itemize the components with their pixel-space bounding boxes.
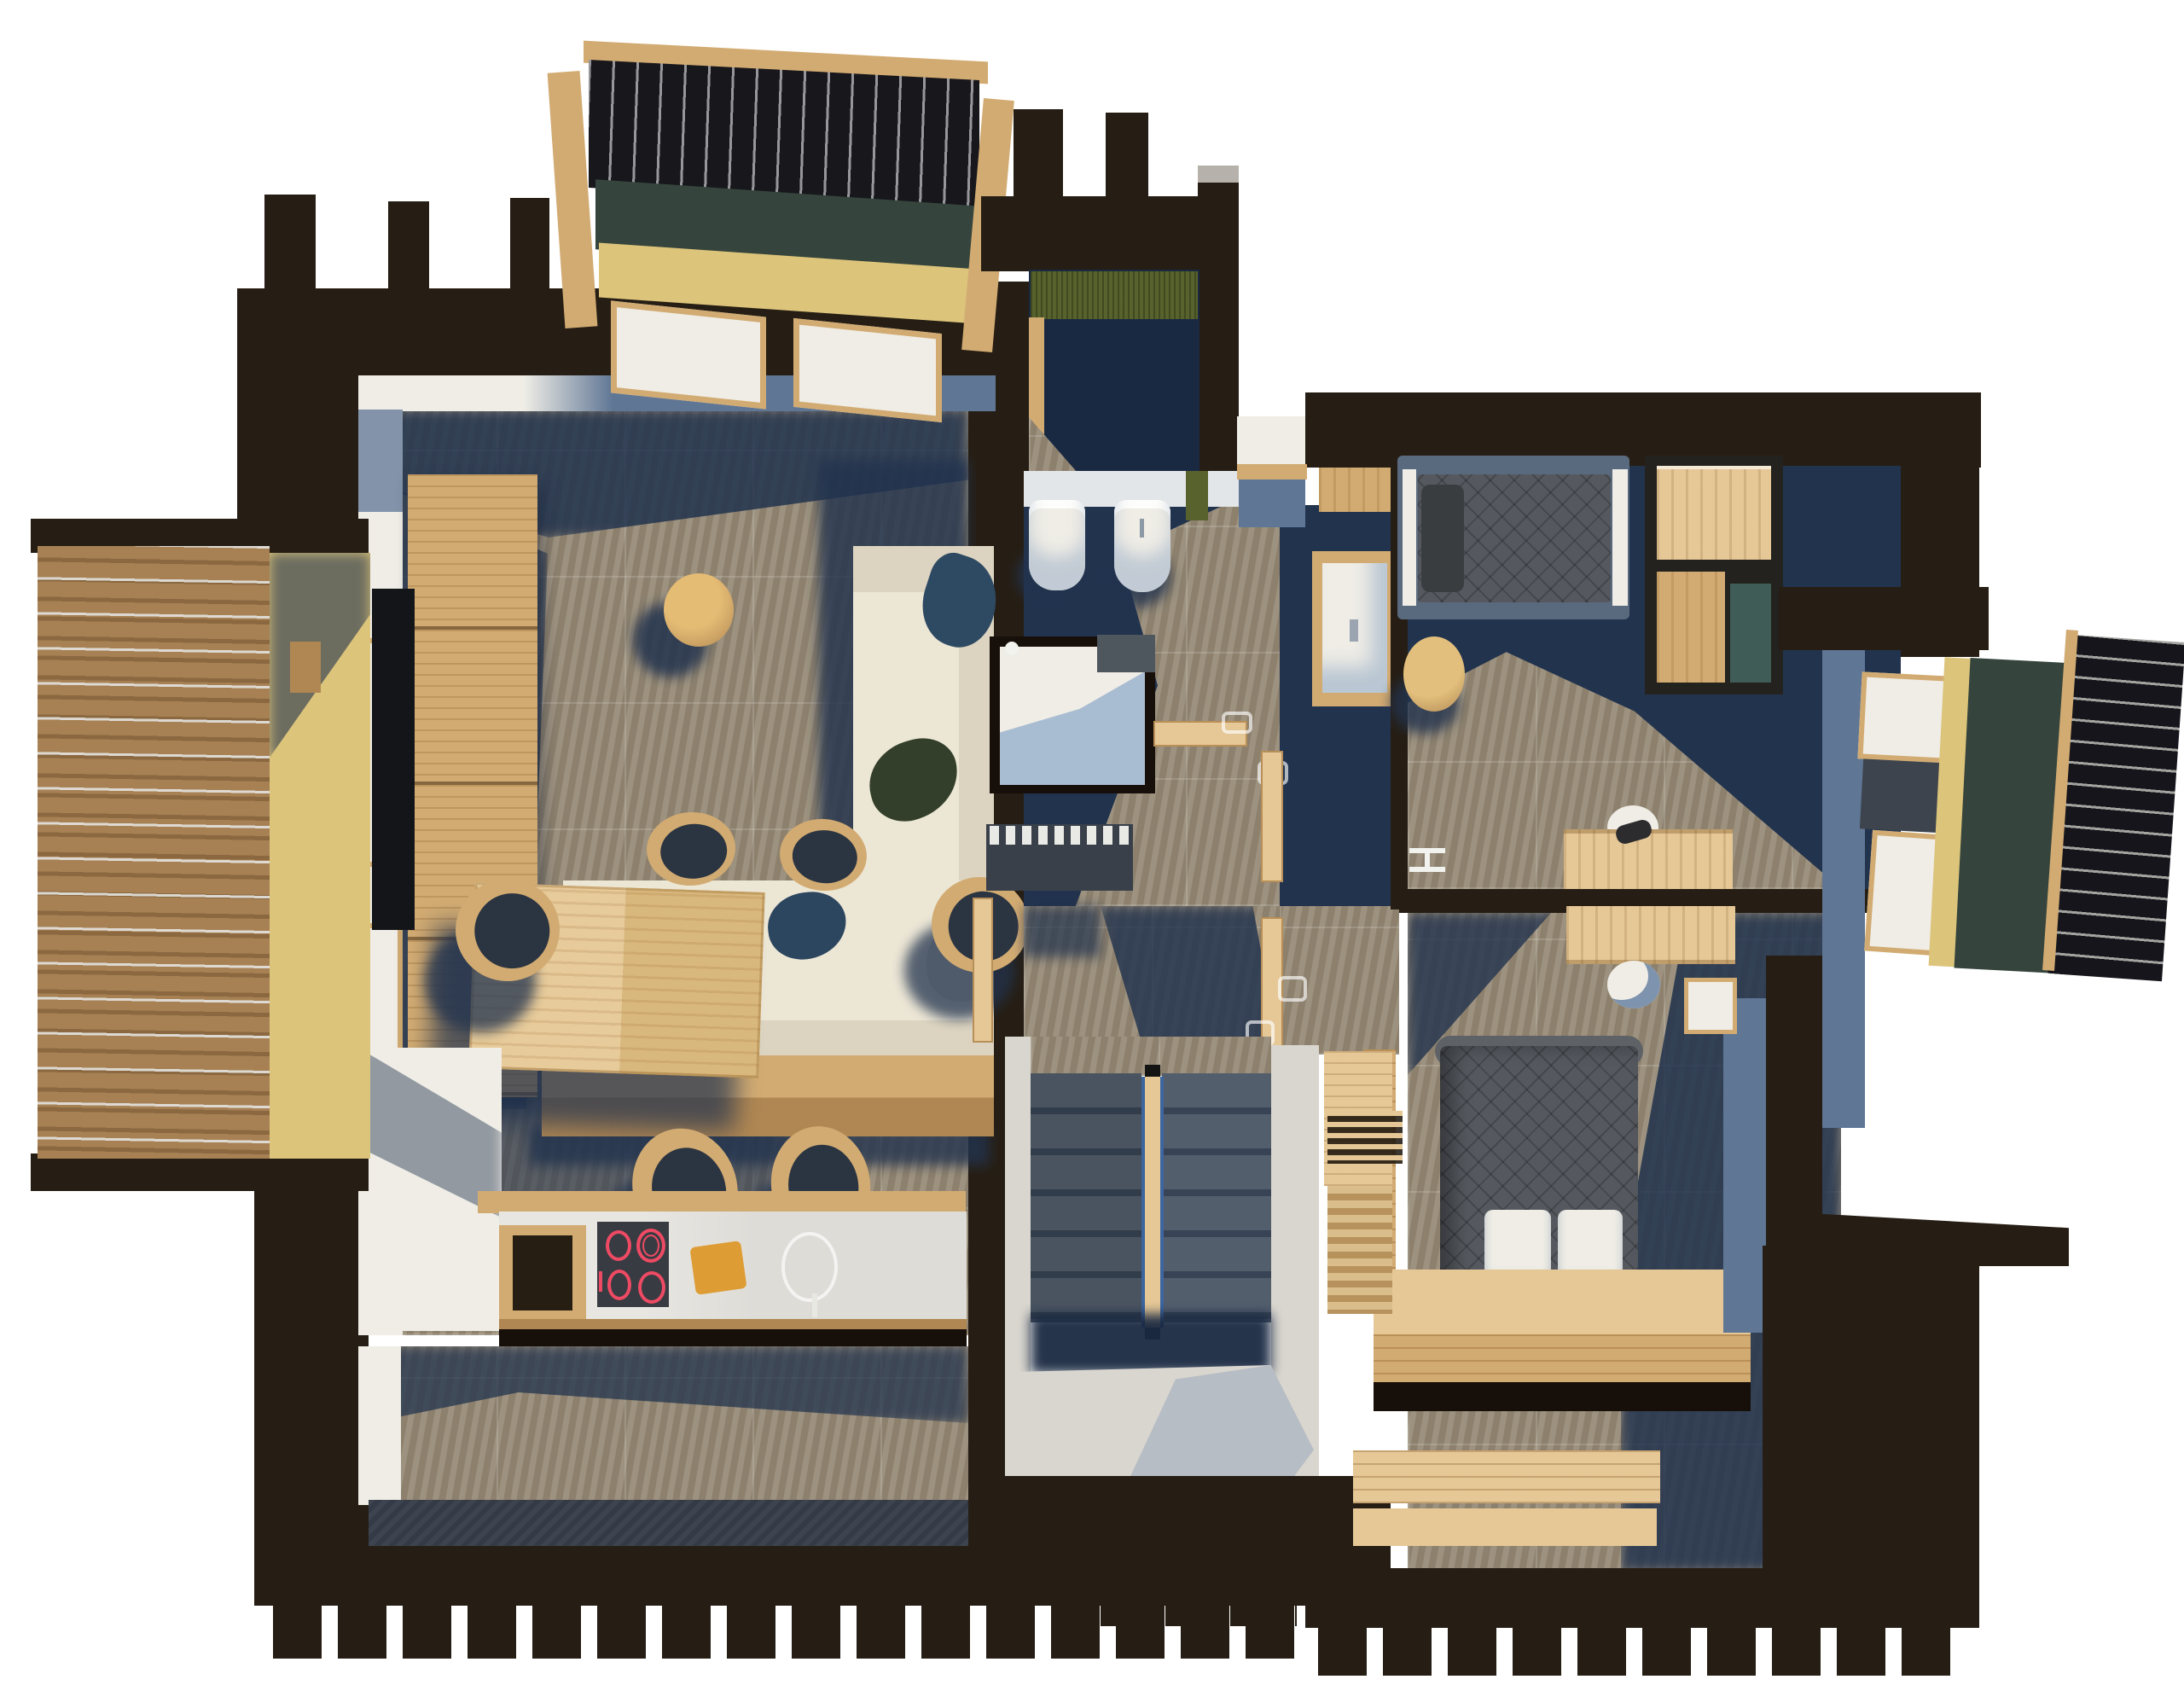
coffee-table [664,573,734,647]
hob-ring-icon [606,1230,631,1261]
door-handle [1278,976,1307,1002]
dormer-north-window [611,300,766,409]
wardrobe-teal-panel [1730,584,1771,683]
tv-screen [372,589,415,930]
entry-landing [1237,416,1305,466]
hob-ring-icon [607,1270,631,1300]
bedroom1-wardrobe [1645,456,1783,694]
cutting-board [689,1241,746,1295]
roof-slope-band [369,1500,968,1549]
dormer-window-sill [1684,978,1737,1034]
rafter-stub [388,201,429,295]
hob-bar-icon [599,1271,602,1292]
chair-seat [659,822,729,880]
chair-seat [468,887,555,974]
shower-head-icon [1005,642,1019,655]
stair-well-shadow [1031,1314,1271,1374]
vanity-basin [1322,563,1387,693]
marker-bar [1425,853,1430,867]
kitchen-front-edge [499,1319,967,1329]
stair-flight-right [1162,1073,1271,1322]
rafter-stub [510,198,549,295]
round-pouf [1403,636,1465,712]
utility-right-wall-cap [1198,166,1239,183]
platform-gap [1374,1382,1751,1411]
bed-head-board [1403,469,1416,606]
hallway-shadow [1024,906,1101,957]
dormer-east-window [1857,671,1950,763]
bed-platform [1374,1270,1751,1345]
kitchen-back-edge [478,1191,966,1213]
hanger-rack [1327,1111,1403,1164]
shelf-opening [513,1235,572,1310]
radiator-fins [990,826,1130,845]
bed-foot-board [1612,469,1628,606]
foot-bench-lower [1353,1508,1657,1546]
rafter-stub [1106,113,1148,200]
foot-bench [1353,1450,1660,1503]
wall-face-shaded [358,410,403,512]
east-eaves-band [1305,1568,1979,1628]
marker-bar [1409,867,1445,872]
stair-flight-left [1031,1073,1141,1322]
east-rafter-teeth [1318,1624,1966,1676]
chair-seat [790,828,859,886]
door-leaf [1261,751,1283,882]
rafter-stub [264,195,316,295]
door-leaf [973,898,993,1043]
stair-handrail [1141,1077,1164,1328]
kitchen-sink [781,1232,838,1302]
living-left-wall-lower [254,1182,369,1591]
hob-ring-icon [636,1229,665,1263]
desk-chair [1607,961,1660,1008]
bedroom2-south-mass [1763,1246,1979,1604]
bidet [1114,500,1170,592]
bidet-tap-icon [1140,519,1144,538]
wardrobe-shelf-striped [1327,1186,1392,1314]
balcony-frame [31,1153,369,1191]
bed-platform-planks [1374,1334,1751,1384]
stair-rafter-teeth [1101,1589,1297,1626]
dormer-east-top-mass [1779,587,1989,650]
wardrobe-shelf [1657,572,1725,683]
induction-hob [597,1222,669,1307]
south-room-west-wall [358,1346,401,1505]
kitchen-under-counter [499,1329,967,1346]
section-marker-icon [1409,848,1445,872]
entry-wall-face [1239,479,1305,527]
sink-faucet [812,1293,817,1317]
desk [1566,906,1735,964]
bathroom-door-mat [1186,471,1208,520]
utility-green-mat [1031,271,1198,319]
bedroom2-east-wall-face [1723,998,1768,1333]
wardrobe-shelf [1657,466,1771,560]
shower-glass [1097,635,1155,672]
balcony-stool [290,642,321,693]
balcony-railing [38,546,270,1159]
entry-threshold [1237,464,1307,479]
rafter-stub [1014,109,1063,200]
floorplan-render [0,0,2184,1691]
kitchen-open-shelf [499,1225,586,1321]
basin-faucet-icon [1350,619,1358,642]
toilet [1029,500,1085,590]
single-bed-pillow [1421,485,1464,592]
dormer-north-window [793,318,942,422]
desk [1564,829,1733,889]
dormer-east-bottom-mass [1779,1212,2069,1266]
dormer-east-wall-face [1822,650,1865,1128]
handrail-cap [1145,1065,1160,1077]
hob-ring-icon [638,1271,665,1304]
door-handle [1222,712,1252,734]
